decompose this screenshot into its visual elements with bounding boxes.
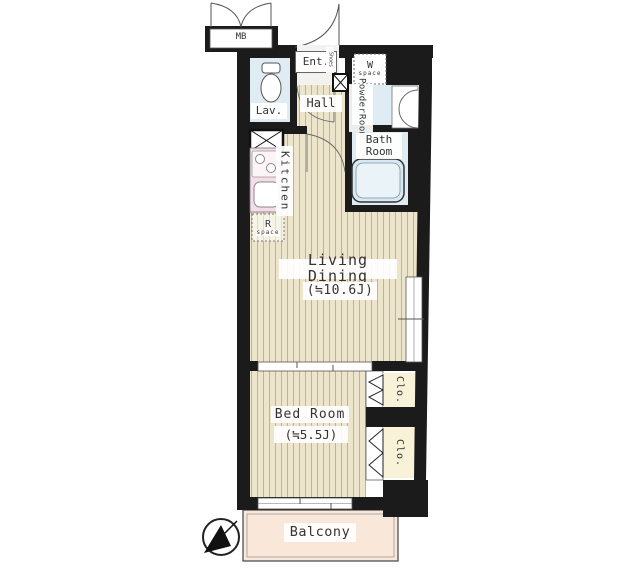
bottom-right-wall-block: [383, 480, 428, 517]
powder-room-label: Powder Room: [349, 84, 373, 132]
hall-label: Hall: [300, 95, 342, 112]
bath-room-label: Bath Room: [356, 133, 402, 159]
partition-stub-left: [250, 361, 258, 371]
washbasin-icon: [392, 86, 418, 128]
bedroom-window-icon: [258, 498, 352, 509]
shoe-cabinet-crossed-box-icon: [333, 74, 348, 91]
toilet-icon: [261, 63, 281, 102]
closet-lower-label: Clo.: [390, 436, 407, 470]
lavatory-label: Lav.: [251, 103, 287, 119]
bathtub-icon: [352, 159, 404, 202]
powder-room-line1: Powder: [356, 78, 367, 114]
living-dining-label: Living Dining: [279, 259, 397, 279]
w-space-word: space: [358, 71, 381, 77]
closet-divider-wall: [366, 407, 416, 427]
r-space-label: R space: [253, 216, 283, 239]
mb-label: MB: [210, 29, 272, 47]
door-swing-icon: [295, 4, 339, 47]
bath-room-line2: Room: [366, 146, 393, 158]
closet-upper-label: Clo.: [390, 376, 407, 405]
upper-right-wall-block: [386, 52, 432, 85]
floor-plan: MB Ent. Shoes W space Lav. Hall Powder R…: [0, 0, 640, 569]
north-arrow-icon: [203, 519, 239, 555]
sliding-partition-icon: [258, 362, 372, 371]
kitchen-label: Kitchen: [276, 146, 293, 216]
balcony-label: Balcony: [284, 523, 356, 542]
partition-stub-right: [372, 361, 417, 371]
bath-bottom-wall: [345, 205, 422, 212]
living-dining-area: (≒10.6J): [303, 282, 377, 300]
r-space-letter: R: [265, 220, 271, 230]
bed-room-area: (≒5.5J): [274, 426, 348, 443]
bed-room-label: Bed Room: [271, 406, 349, 423]
left-wall: [237, 45, 250, 510]
r-space-word: space: [256, 230, 279, 236]
shoes-label: Shoes: [326, 47, 334, 73]
double-door-swing-icon: [211, 3, 271, 27]
